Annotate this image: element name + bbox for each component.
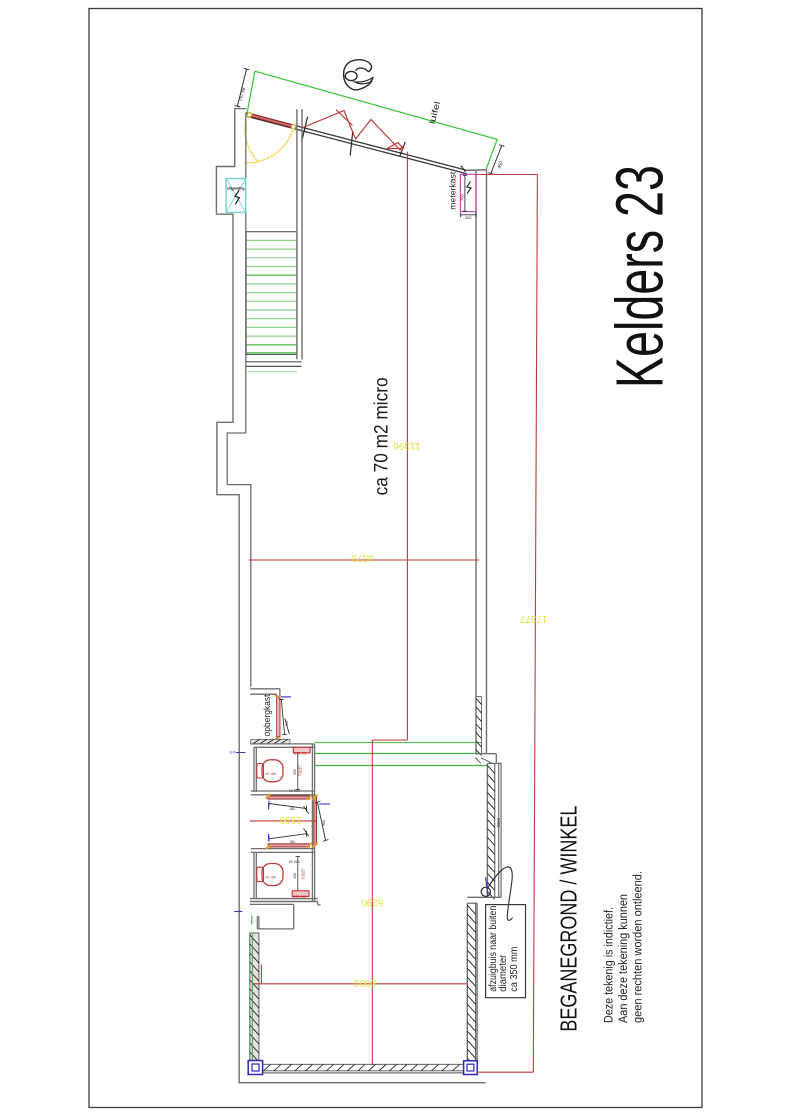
svg-text:600: 600 [464, 216, 471, 221]
svg-text:opbergkast: opbergkast [262, 694, 272, 736]
svg-text:563 36: 563 36 [289, 860, 300, 864]
svg-text:6290: 6290 [361, 897, 384, 908]
svg-text:stijgleiding: stijgleiding [227, 187, 245, 191]
svg-text:2650: 2650 [496, 818, 501, 828]
svg-text:ca 70 m2 micro: ca 70 m2 micro [371, 377, 392, 495]
svg-text:780: 780 [290, 807, 296, 811]
svg-text:Deze tekenig is indictief.: Deze tekenig is indictief. [604, 907, 616, 1023]
svg-text:ca 350 mm: ca 350 mm [509, 947, 520, 992]
svg-text:4370: 4370 [351, 552, 374, 563]
svg-text:6000: 6000 [353, 977, 376, 988]
svg-text:650: 650 [293, 769, 297, 775]
svg-text:TOILET: TOILET [298, 765, 303, 776]
svg-text:11396: 11396 [393, 440, 421, 451]
svg-text:4x70: 4x70 [229, 750, 236, 754]
svg-text:meterkast: meterkast [448, 171, 458, 210]
svg-text:17377: 17377 [519, 613, 547, 624]
svg-text:SV 110: SV 110 [294, 751, 307, 755]
svg-text:650: 650 [293, 873, 297, 879]
svg-text:563 36: 563 36 [289, 789, 300, 793]
svg-text:BEGANEGROND / WINKEL: BEGANEGROND / WINKEL [555, 805, 581, 1031]
svg-text:700: 700 [459, 194, 464, 201]
svg-text:Kelders 23: Kelders 23 [602, 165, 677, 388]
svg-text:Aan deze tekening kunnen: Aan deze tekening kunnen [618, 894, 630, 1023]
svg-text:487 24: 487 24 [265, 875, 276, 879]
svg-text:diameter: diameter [498, 954, 509, 992]
svg-text:1300: 1300 [279, 814, 302, 825]
svg-text:TOILET: TOILET [301, 868, 306, 879]
svg-text:780: 780 [290, 840, 296, 844]
svg-text:750: 750 [284, 720, 289, 726]
svg-text:geen rechten worden ontleend.: geen rechten worden ontleend. [633, 871, 645, 1023]
svg-text:SV 110: SV 110 [293, 894, 306, 898]
svg-text:487 24: 487 24 [265, 772, 276, 776]
